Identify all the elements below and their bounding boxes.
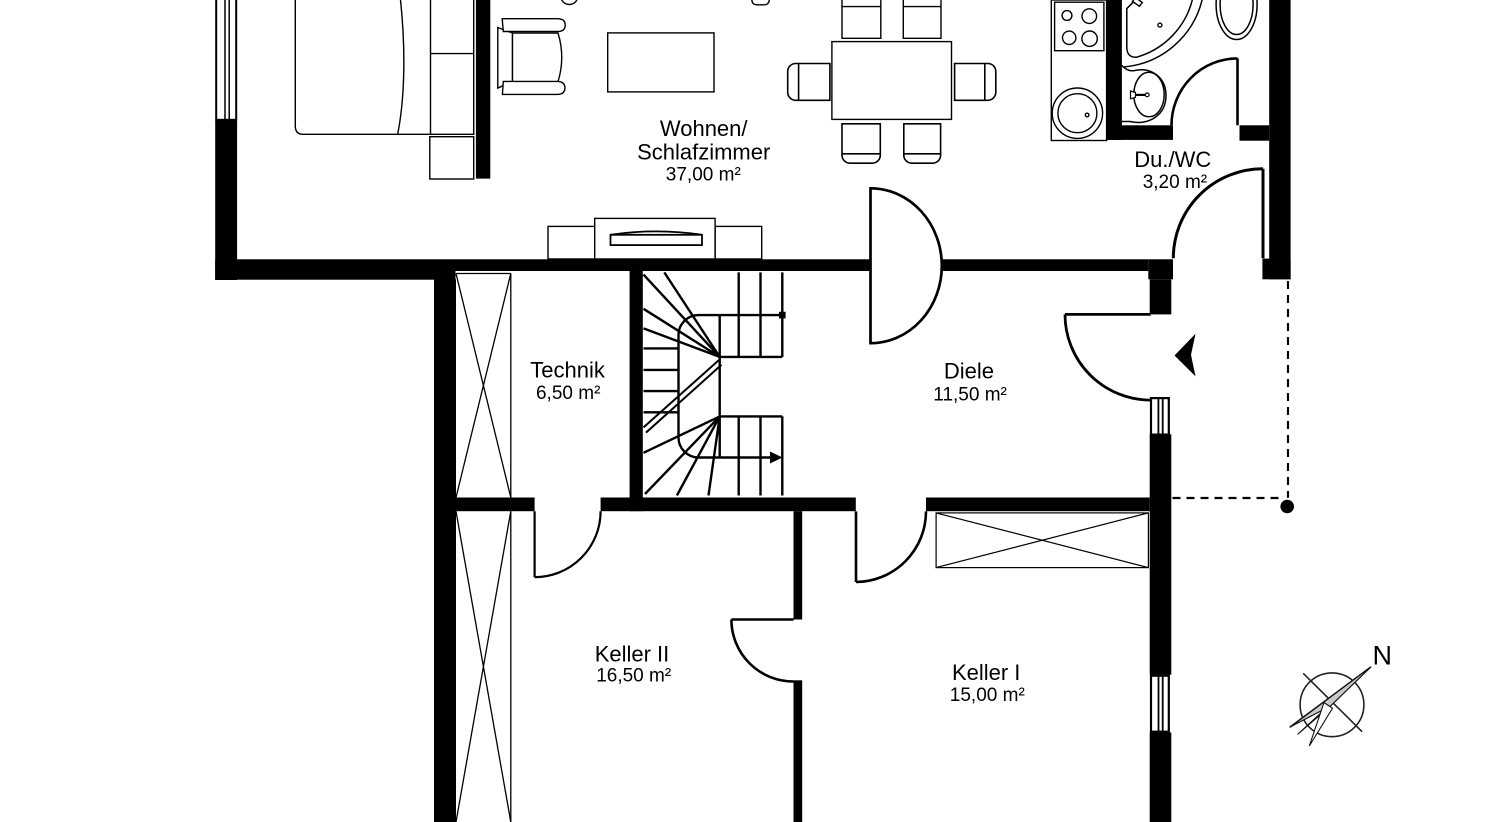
- svg-text:6,50 m²: 6,50 m²: [536, 383, 600, 404]
- svg-text:3,20 m²: 3,20 m²: [1143, 172, 1207, 193]
- svg-text:N: N: [1372, 641, 1392, 671]
- svg-text:Keller I: Keller I: [952, 660, 1020, 685]
- svg-text:11,50 m²: 11,50 m²: [933, 384, 1007, 405]
- svg-text:Schlafzimmer: Schlafzimmer: [637, 140, 770, 165]
- svg-text:16,50 m²: 16,50 m²: [596, 666, 671, 687]
- svg-text:Wohnen/: Wohnen/: [660, 116, 749, 141]
- svg-text:37,00 m²: 37,00 m²: [666, 165, 741, 186]
- svg-text:Technik: Technik: [530, 358, 606, 383]
- svg-text:15,00 m²: 15,00 m²: [950, 685, 1025, 706]
- svg-text:Du./WC: Du./WC: [1134, 147, 1211, 172]
- svg-text:Diele: Diele: [944, 359, 994, 384]
- svg-text:Keller II: Keller II: [595, 641, 670, 666]
